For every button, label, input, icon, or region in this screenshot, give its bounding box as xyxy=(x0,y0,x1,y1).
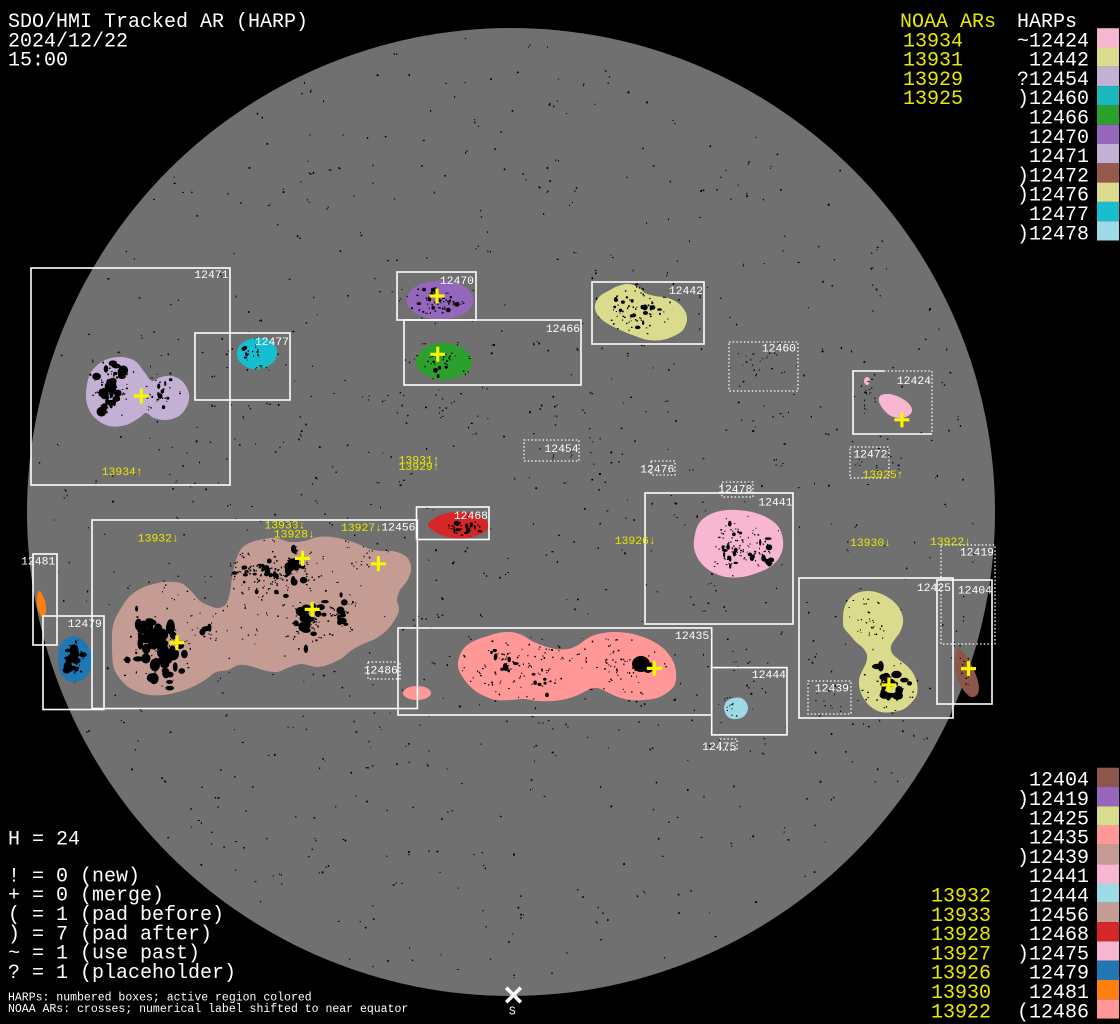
svg-text:12486: 12486 xyxy=(364,665,398,677)
svg-text:12419: 12419 xyxy=(960,548,994,560)
svg-text:(12486: (12486 xyxy=(1017,1001,1089,1024)
svg-text:12456: 12456 xyxy=(381,523,415,535)
svg-text:12481: 12481 xyxy=(21,557,55,569)
svg-text:12444: 12444 xyxy=(752,670,786,682)
svg-text:NOAA ARs: crosses; numerical l: NOAA ARs: crosses; numerical label shift… xyxy=(8,1003,408,1016)
svg-text:12425: 12425 xyxy=(917,583,951,595)
svg-text:13922↓: 13922↓ xyxy=(930,537,971,549)
svg-text:12470: 12470 xyxy=(440,276,474,288)
svg-text:12441: 12441 xyxy=(758,498,792,510)
svg-text:13930↓: 13930↓ xyxy=(850,538,891,550)
svg-text:12471: 12471 xyxy=(194,270,228,282)
svg-text:12439: 12439 xyxy=(815,684,849,696)
svg-text:12404: 12404 xyxy=(958,586,992,598)
svg-text:12468: 12468 xyxy=(454,511,488,523)
svg-text:12435: 12435 xyxy=(675,631,709,643)
svg-text:13929↑: 13929↑ xyxy=(399,462,440,474)
svg-text:13928↓: 13928↓ xyxy=(274,530,315,542)
svg-text:12454: 12454 xyxy=(544,444,578,456)
svg-text:12442: 12442 xyxy=(669,286,703,298)
svg-text:12475: 12475 xyxy=(702,742,736,754)
svg-text:12477: 12477 xyxy=(255,337,289,349)
svg-text:12479: 12479 xyxy=(68,619,102,631)
svg-text:S: S xyxy=(509,1005,516,1018)
svg-text:12476: 12476 xyxy=(640,464,674,476)
svg-text:)12478: )12478 xyxy=(1017,223,1089,246)
svg-text:12466: 12466 xyxy=(546,324,580,336)
svg-text:13922: 13922 xyxy=(931,1001,991,1024)
svg-text:? = 1 (placeholder): ? = 1 (placeholder) xyxy=(8,962,236,985)
svg-text:12424: 12424 xyxy=(897,376,931,388)
svg-text:15:00: 15:00 xyxy=(8,50,68,73)
svg-text:13934↑: 13934↑ xyxy=(102,467,143,479)
svg-text:12460: 12460 xyxy=(762,343,796,355)
svg-text:12478: 12478 xyxy=(718,485,752,497)
svg-text:13925↑: 13925↑ xyxy=(863,470,904,482)
svg-text:13932↓: 13932↓ xyxy=(138,534,179,546)
svg-text:13927↓: 13927↓ xyxy=(341,523,382,535)
svg-text:H = 24: H = 24 xyxy=(8,829,80,852)
svg-text:13926↓: 13926↓ xyxy=(615,536,656,548)
svg-text:13925: 13925 xyxy=(903,88,963,111)
svg-text:12472: 12472 xyxy=(853,450,887,462)
